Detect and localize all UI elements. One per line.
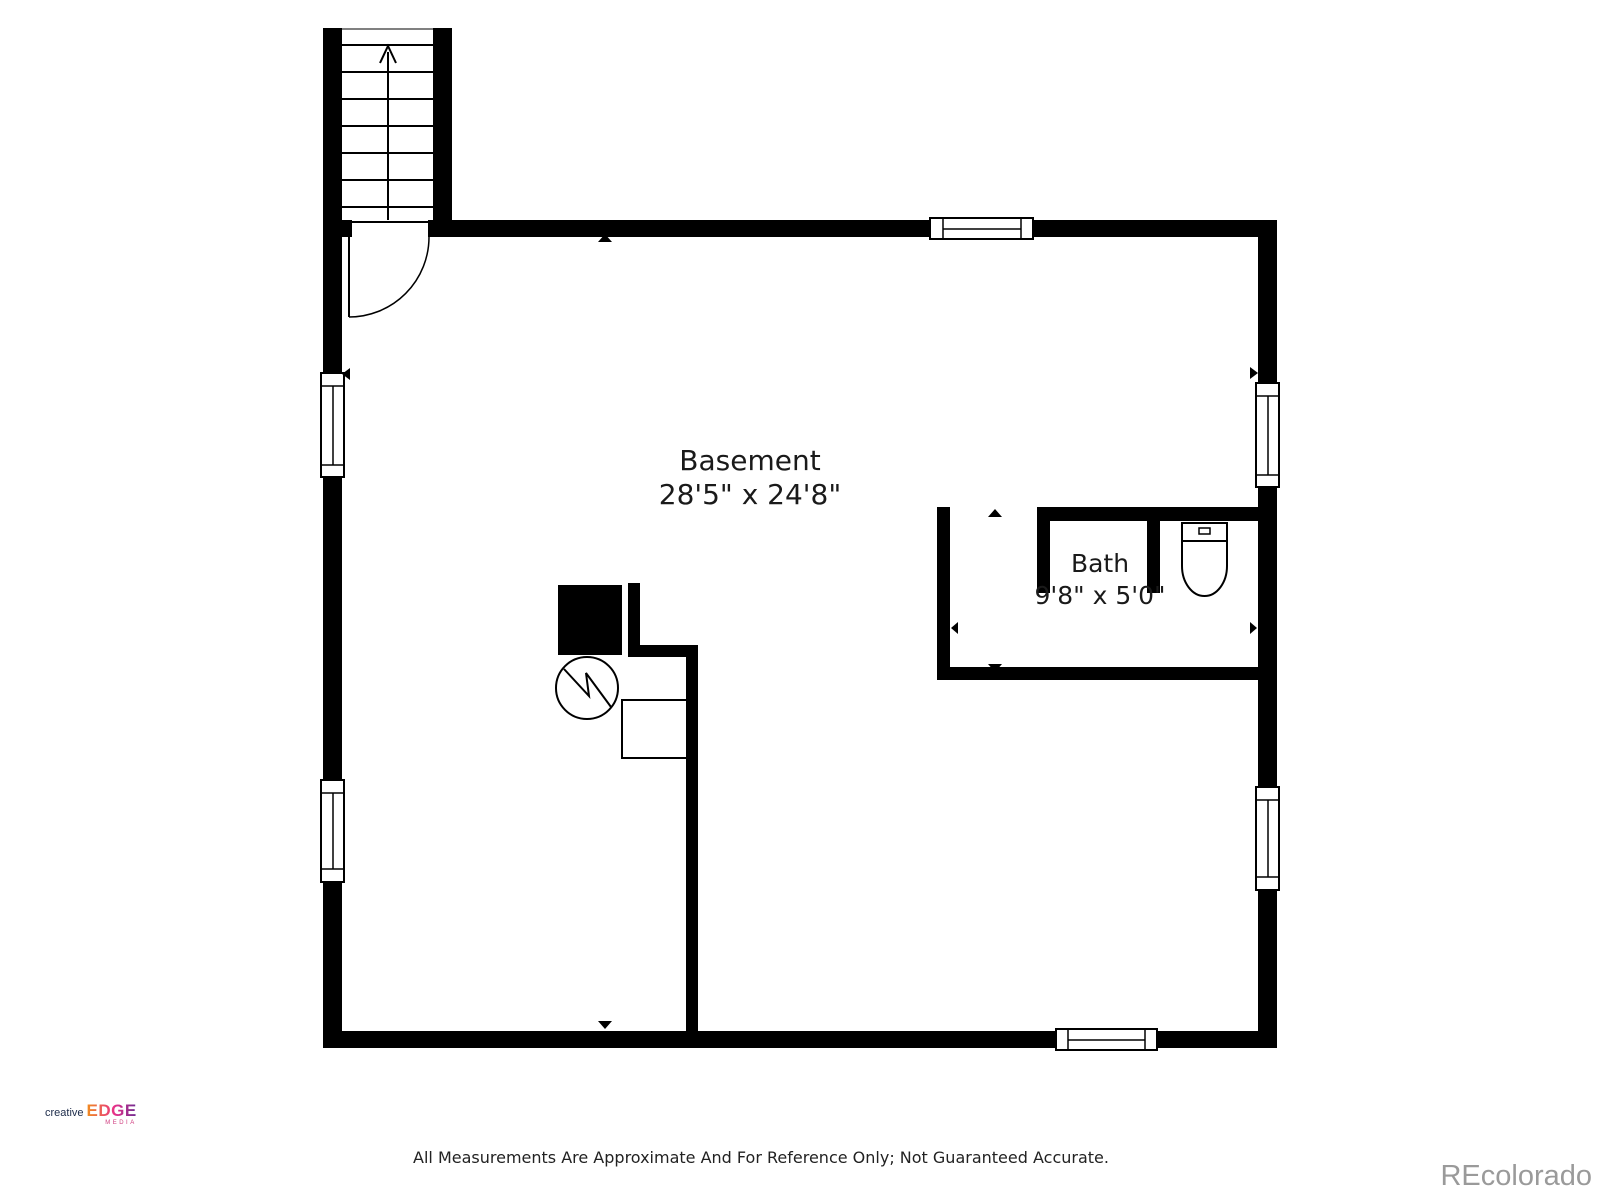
wall-bath-corridor-left [937,507,950,680]
utility-area [556,583,698,1031]
marker-bath-top-icon [988,509,1002,517]
furnace-icon [558,585,622,655]
room-dimensions: 28'5" x 24'8" [550,478,950,512]
window-bottom-icon [1056,1029,1157,1050]
utility-equipment-box [622,700,687,758]
measurements-disclaimer: All Measurements Are Approximate And For… [0,1148,1522,1167]
windows [321,218,1279,1050]
marker-bath-right-icon [1250,622,1257,634]
marker-bath-left-icon [951,622,958,634]
wall-stairwell-right [433,28,452,237]
logo-word-media: MEDIA [87,1120,137,1126]
wall-top [428,220,1277,237]
marker-right-icon [1250,367,1258,379]
exterior-walls [323,28,1277,1048]
creative-edge-media-logo: creative EDGE MEDIA [45,1101,137,1126]
window-right-upper-icon [1256,383,1279,487]
logo-word-edge: EDGE [87,1101,137,1120]
window-right-lower-icon [1256,787,1279,890]
wall-right [1258,220,1277,1048]
recolorado-watermark: REcolorado [1440,1160,1592,1193]
bath-dimensions: 9'8" x 5'0" [980,580,1220,612]
room-label-basement: Basement 28'5" x 24'8" [550,444,950,512]
window-left-lower-icon [321,780,344,882]
wall-left [323,28,342,1048]
window-left-upper-icon [321,373,344,477]
floor-plan-canvas: Basement 28'5" x 24'8" Bath 9'8" x 5'0" … [0,0,1600,1200]
staircase [342,29,433,222]
water-heater-icon [556,657,618,719]
window-top-icon [930,218,1033,239]
dimension-markers [342,234,1258,1029]
door-swing-arc-icon [349,237,429,317]
room-label-bath: Bath 9'8" x 5'0" [980,548,1220,612]
marker-bottom-icon [598,1021,612,1029]
bath-name: Bath [980,548,1220,580]
logo-word-creative: creative [45,1107,84,1119]
room-name: Basement [550,444,950,478]
floor-plan-drawing [0,0,1600,1200]
wall-bath-bottom [937,667,1258,680]
wall-bath-top [1037,507,1258,521]
wall-utility-vertical-short [628,583,640,655]
